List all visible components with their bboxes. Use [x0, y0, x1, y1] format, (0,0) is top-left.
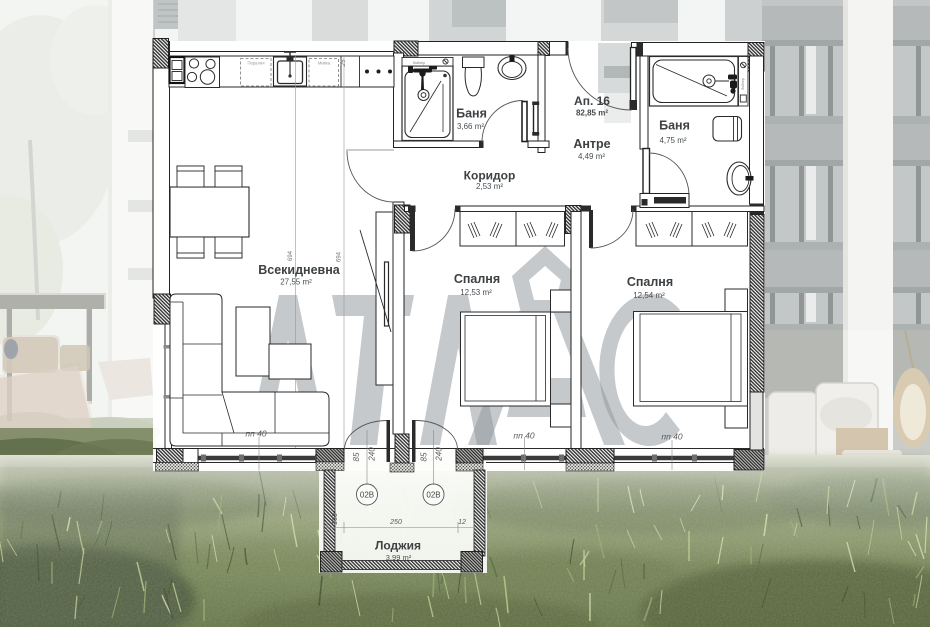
- svg-text:Ап. 16: Ап. 16: [574, 94, 610, 108]
- svg-text:бойлер: бойлер: [413, 61, 425, 65]
- svg-text:Спалня: Спалня: [627, 275, 673, 289]
- svg-text:Пералня: Пералня: [247, 61, 264, 66]
- svg-text:82,85 m²: 82,85 m²: [576, 109, 608, 118]
- svg-text:85: 85: [352, 452, 361, 461]
- svg-text:12: 12: [458, 519, 466, 526]
- svg-text:163: 163: [332, 513, 339, 525]
- svg-text:27,55 m²: 27,55 m²: [280, 278, 312, 287]
- svg-text:Антре: Антре: [573, 137, 610, 151]
- svg-text:Лоджия: Лоджия: [375, 539, 421, 553]
- svg-text:Баня: Баня: [659, 119, 690, 133]
- svg-text:240: 240: [368, 447, 377, 462]
- svg-text:4,75 m²: 4,75 m²: [659, 136, 686, 145]
- svg-text:3,99 m²: 3,99 m²: [386, 553, 412, 562]
- svg-text:02В: 02В: [426, 491, 440, 500]
- svg-text:12,53 m²: 12,53 m²: [460, 288, 492, 297]
- svg-text:пп 40: пп 40: [513, 431, 534, 441]
- svg-text:Баня: Баня: [456, 107, 487, 121]
- svg-text:2,53 m²: 2,53 m²: [476, 182, 503, 191]
- svg-text:Спалня: Спалня: [454, 272, 500, 286]
- svg-text:240: 240: [435, 447, 444, 462]
- svg-text:694: 694: [337, 251, 343, 262]
- svg-text:694: 694: [288, 250, 294, 261]
- svg-text:25: 25: [340, 59, 347, 68]
- svg-text:3,66 m²: 3,66 m²: [457, 122, 484, 131]
- svg-text:85: 85: [420, 452, 429, 461]
- svg-text:02В: 02В: [360, 491, 374, 500]
- svg-text:12,54 m²: 12,54 m²: [633, 291, 665, 300]
- svg-text:4,49 m²: 4,49 m²: [578, 152, 605, 161]
- svg-text:Всекидневна: Всекидневна: [258, 263, 341, 277]
- svg-text:бойлер: бойлер: [741, 78, 745, 90]
- svg-text:250: 250: [389, 519, 402, 526]
- svg-text:пп 40: пп 40: [661, 432, 682, 442]
- svg-text:пп 40: пп 40: [245, 429, 266, 439]
- svg-text:Коридор: Коридор: [464, 169, 516, 183]
- svg-text:Мивка: Мивка: [318, 61, 331, 66]
